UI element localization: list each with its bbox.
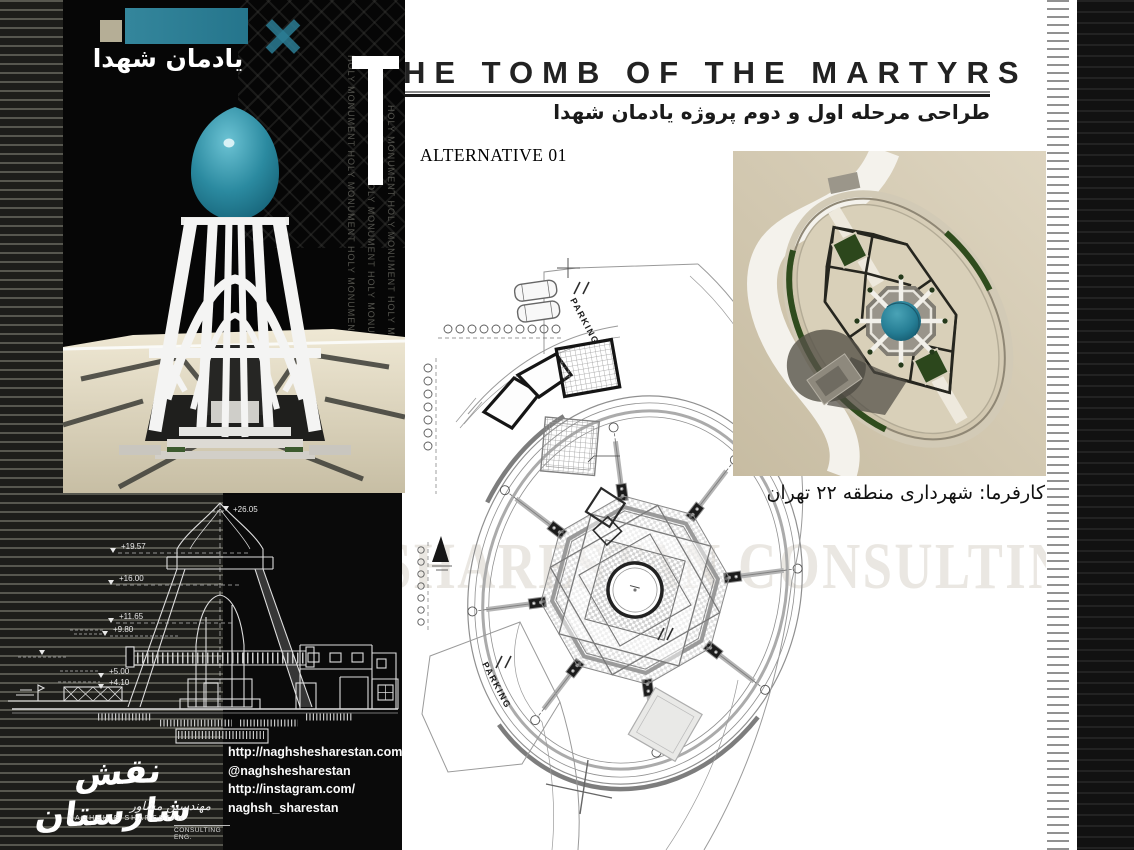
svg-text:+9.80: +9.80 (113, 625, 134, 634)
website-link: http://naghshesharestan.com (228, 743, 408, 762)
svg-text:+26.05: +26.05 (233, 505, 258, 514)
hatched-square (541, 417, 600, 476)
logo-type-en: CONSULTING ENG. (174, 825, 230, 841)
title-initial-stem (368, 56, 383, 185)
logo-name-en: NAGHSH E SHARESTAN (68, 815, 185, 822)
bus-stalls (514, 279, 561, 322)
monument-3d-render (63, 95, 405, 493)
monument-top-view (854, 274, 947, 367)
teal-dome (191, 107, 279, 221)
right-edge-band (1077, 0, 1134, 850)
page-title: HE TOMB OF THE MARTYRS (403, 55, 1028, 91)
elevation-panel: +26.05 +19.57 +16.00 +11.65 +9.80 +5.00 … (0, 493, 402, 850)
svg-text:+11.65: +11.65 (119, 612, 144, 621)
monument-render-panel: یادمان شهدا HOLY MONUMENT HOLY MONUMENT … (63, 0, 405, 493)
contact-links: http://naghshesharestan.com @naghsheshar… (228, 743, 408, 817)
ruler-strip (1046, 0, 1077, 850)
logo-tagline-fa: مهندسین مشاور (129, 799, 213, 813)
north-arrow (432, 536, 452, 570)
left-stripe-band (0, 0, 63, 493)
central-star (527, 482, 742, 697)
accent-bar (125, 8, 248, 44)
project-title-fa: یادمان شهدا (73, 44, 263, 73)
accent-square (100, 20, 122, 42)
client-caption-fa: کارفرما: شهرداری منطقه ۲۲ تهران (700, 482, 1045, 504)
company-logo: نقش شارستان مهندسین مشاور NAGHSH E SHARE… (16, 751, 230, 846)
parking-label-top: PARKING (568, 296, 601, 346)
svg-text:+16.00: +16.00 (119, 574, 144, 583)
presentation-board: NAGHSH E SHARESTAN CONSULTING ENG. (0, 0, 1134, 850)
svg-text:+19.57: +19.57 (121, 542, 146, 551)
svg-text:+4.10: +4.10 (109, 678, 130, 687)
title-underline (405, 91, 990, 97)
aerial-3d-render (733, 151, 1046, 476)
social-handle: @naghshesharestan (228, 762, 408, 781)
alternative-label: ALTERNATIVE 01 (420, 145, 567, 166)
instagram-handle: naghsh_sharestan (228, 799, 408, 818)
subtitle-fa: طراحی مرحله اول و دوم پروژه یادمان شهدا (500, 100, 990, 124)
instagram-link: http://instagram.com/ (228, 780, 408, 799)
svg-text:+5.00: +5.00 (109, 667, 130, 676)
